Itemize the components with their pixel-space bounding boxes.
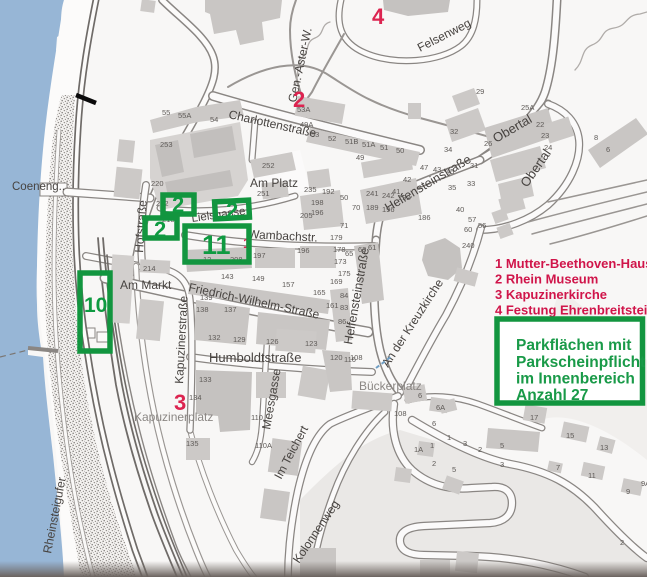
svg-text:31: 31 [470, 161, 478, 170]
svg-text:197: 197 [253, 251, 266, 260]
svg-text:13: 13 [600, 443, 608, 452]
svg-text:Coeneng..: Coeneng.. [12, 181, 65, 193]
svg-text:214: 214 [143, 264, 156, 273]
svg-text:110: 110 [251, 413, 263, 422]
svg-text:50: 50 [396, 146, 404, 155]
svg-text:196: 196 [297, 246, 310, 255]
svg-text:235: 235 [304, 185, 317, 194]
svg-text:241: 241 [366, 189, 379, 198]
svg-text:3: 3 [174, 390, 186, 415]
svg-text:133: 133 [199, 375, 212, 384]
svg-text:84: 84 [340, 291, 348, 300]
svg-text:134: 134 [189, 393, 202, 402]
svg-text:2: 2 [620, 538, 624, 547]
svg-text:42: 42 [403, 175, 411, 184]
svg-text:3 Kapuzinerkirche: 3 Kapuzinerkirche [495, 287, 607, 302]
svg-text:149: 149 [252, 274, 265, 283]
svg-text:252: 252 [262, 161, 275, 170]
svg-text:54: 54 [210, 115, 218, 124]
svg-text:im Innenbereich: im Innenbereich [516, 371, 635, 388]
svg-text:Parkflächen mit: Parkflächen mit [516, 337, 631, 354]
svg-text:9A: 9A [641, 479, 647, 488]
svg-text:50: 50 [340, 193, 348, 202]
svg-text:15: 15 [566, 431, 574, 440]
svg-text:110A: 110A [255, 441, 272, 450]
svg-text:108: 108 [394, 409, 407, 418]
svg-text:17: 17 [530, 413, 538, 422]
svg-text:11: 11 [202, 230, 231, 260]
svg-text:198: 198 [311, 198, 324, 207]
svg-text:41: 41 [392, 187, 400, 196]
svg-text:4 Festung Ehrenbreitstein: 4 Festung Ehrenbreitstein [495, 303, 647, 318]
svg-text:1: 1 [447, 433, 451, 442]
svg-text:196: 196 [382, 205, 395, 214]
svg-text:3: 3 [500, 460, 504, 469]
svg-text:34: 34 [444, 145, 452, 154]
svg-text:6: 6 [606, 145, 610, 154]
svg-text:2: 2 [293, 87, 305, 112]
svg-text:35: 35 [448, 183, 456, 192]
svg-text:22: 22 [536, 120, 544, 129]
svg-text:5: 5 [500, 441, 504, 450]
svg-text:4: 4 [372, 4, 385, 29]
svg-text:5: 5 [452, 465, 456, 474]
svg-text:161: 161 [326, 301, 339, 310]
svg-text:2: 2 [172, 192, 184, 217]
svg-text:240: 240 [462, 241, 475, 250]
svg-text:196: 196 [311, 208, 324, 217]
svg-text:169: 169 [330, 277, 343, 286]
svg-text:Humboldtstraße: Humboldtstraße [209, 350, 301, 365]
svg-text:139: 139 [200, 293, 213, 302]
svg-text:Am Markt: Am Markt [120, 278, 172, 292]
svg-text:220: 220 [151, 179, 164, 188]
svg-text:56: 56 [478, 221, 486, 230]
svg-text:129: 129 [233, 335, 246, 344]
svg-text:47: 47 [420, 163, 428, 172]
svg-text:175: 175 [338, 269, 351, 278]
svg-text:9: 9 [626, 487, 630, 496]
svg-text:179: 179 [330, 233, 343, 242]
svg-text:253: 253 [160, 140, 173, 149]
svg-text:Bückerplatz: Bückerplatz [359, 379, 422, 393]
svg-text:63: 63 [358, 245, 366, 254]
svg-text:186: 186 [418, 213, 431, 222]
svg-text:135: 135 [186, 439, 199, 448]
svg-text:32: 32 [450, 127, 458, 136]
svg-text:24: 24 [544, 143, 552, 152]
svg-text:52: 52 [328, 134, 336, 143]
svg-text:51B: 51B [345, 137, 358, 146]
svg-text:1 Mutter-Beethoven-Haus: 1 Mutter-Beethoven-Haus [495, 256, 647, 271]
svg-text:10: 10 [84, 294, 107, 317]
svg-text:137: 137 [224, 305, 237, 314]
svg-text:61: 61 [368, 243, 376, 252]
svg-text:51: 51 [380, 143, 388, 152]
svg-text:1A: 1A [414, 445, 423, 454]
svg-text:2: 2 [478, 445, 482, 454]
svg-text:51A: 51A [362, 140, 375, 149]
svg-text:40: 40 [456, 205, 464, 214]
svg-text:23: 23 [541, 131, 549, 140]
svg-text:3: 3 [463, 439, 467, 448]
svg-text:2: 2 [154, 217, 166, 242]
svg-text:11: 11 [588, 471, 596, 480]
svg-text:8: 8 [594, 133, 598, 142]
svg-text:143: 143 [221, 272, 234, 281]
svg-text:70: 70 [352, 203, 360, 212]
svg-text:Parkscheinpflicht: Parkscheinpflicht [516, 354, 645, 371]
svg-text:2: 2 [226, 198, 238, 223]
svg-text:55A: 55A [178, 111, 191, 120]
svg-text:192: 192 [322, 187, 335, 196]
svg-text:173: 173 [334, 257, 347, 266]
svg-text:205: 205 [300, 211, 313, 220]
svg-text:157: 157 [282, 280, 295, 289]
svg-text:86: 86 [338, 317, 346, 326]
svg-text:Anzahl 27: Anzahl 27 [516, 387, 588, 404]
svg-text:26: 26 [484, 139, 492, 148]
svg-text:Am Platz: Am Platz [250, 176, 298, 190]
svg-text:49A: 49A [300, 120, 313, 129]
svg-text:108: 108 [350, 353, 363, 362]
svg-text:60: 60 [464, 225, 472, 234]
svg-text:6: 6 [432, 419, 436, 428]
svg-text:132: 132 [208, 333, 221, 342]
svg-text:251: 251 [257, 189, 270, 198]
svg-text:2 Rhein Museum: 2 Rhein Museum [495, 272, 598, 287]
svg-text:6A: 6A [436, 403, 445, 412]
svg-text:7: 7 [556, 463, 560, 472]
svg-text:45: 45 [446, 167, 454, 176]
svg-text:126: 126 [266, 337, 279, 346]
svg-text:138: 138 [196, 305, 209, 314]
svg-text:6: 6 [418, 391, 422, 400]
svg-text:55: 55 [162, 108, 170, 117]
svg-text:49: 49 [356, 153, 364, 162]
svg-text:29: 29 [476, 87, 484, 96]
svg-text:178: 178 [333, 245, 346, 254]
svg-text:2: 2 [432, 459, 436, 468]
svg-text:123: 123 [305, 339, 318, 348]
svg-text:53: 53 [311, 130, 319, 139]
svg-text:33: 33 [467, 179, 475, 188]
svg-text:165: 165 [313, 288, 326, 297]
svg-text:83: 83 [340, 303, 348, 312]
svg-text:25A: 25A [521, 103, 534, 112]
svg-text:189: 189 [366, 203, 379, 212]
svg-text:57: 57 [468, 215, 476, 224]
svg-text:1: 1 [430, 441, 434, 450]
svg-text:71: 71 [340, 221, 348, 230]
svg-text:120: 120 [330, 353, 343, 362]
svg-text:43: 43 [433, 165, 441, 174]
